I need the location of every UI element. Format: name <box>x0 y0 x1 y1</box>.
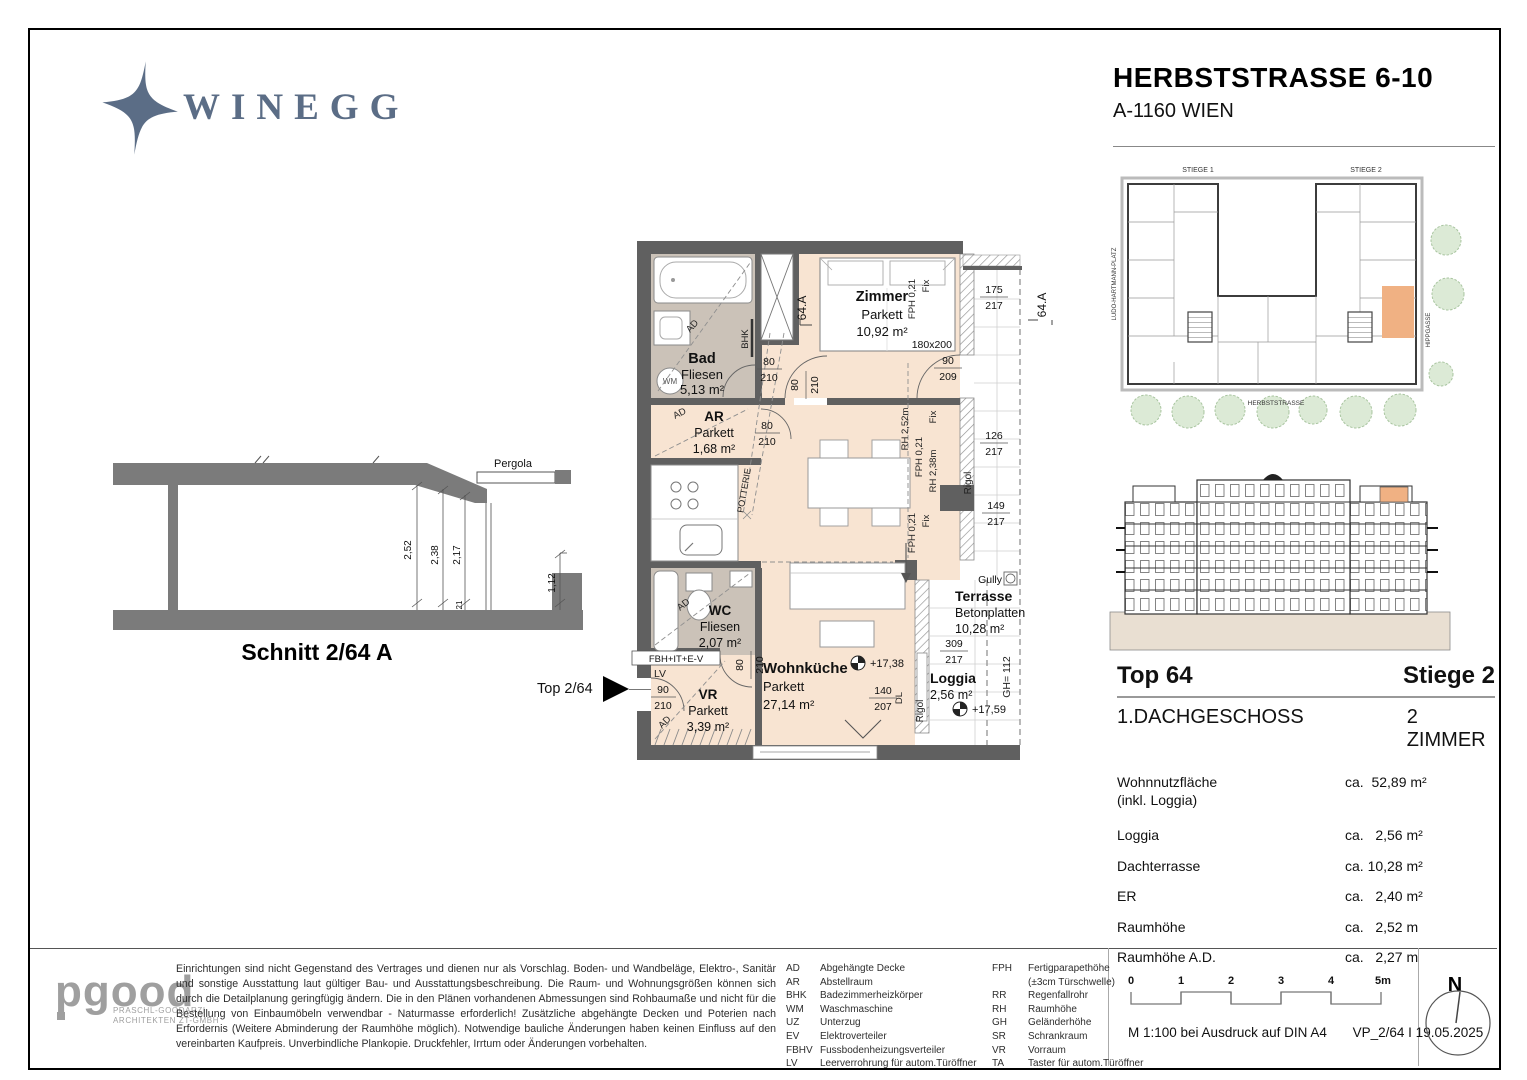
svg-text:BHK: BHK <box>740 329 751 349</box>
legend-column-2: FPH Fertigparapethöhe (±3cm Türschwelle)… <box>992 962 1143 1071</box>
legend-abbr: BHK <box>786 989 820 1003</box>
svg-text:1,68 m²: 1,68 m² <box>693 442 735 456</box>
svg-text:126: 126 <box>985 430 1003 442</box>
legend-desc: Leerverrohrung für autom.Türöffner <box>820 1057 977 1071</box>
legend-desc: Abgehängte Decke <box>820 962 905 976</box>
pergola-anchor <box>555 470 571 484</box>
svg-text:Fix: Fix <box>921 514 932 527</box>
brand-wordmark: WINEGG <box>183 86 409 129</box>
entry-label: Top 2/64 <box>537 681 593 697</box>
svg-text:VR: VR <box>699 687 718 702</box>
floor-plan: WM <box>630 233 1060 773</box>
svg-text:180x200: 180x200 <box>912 339 952 351</box>
section-structure <box>113 463 583 630</box>
svg-text:10,92 m²: 10,92 m² <box>856 324 908 339</box>
svg-text:WC: WC <box>709 603 732 618</box>
svg-text:80: 80 <box>761 420 773 432</box>
ground <box>1110 612 1450 650</box>
svg-text:27,14 m²: 27,14 m² <box>763 697 815 712</box>
svg-text:80: 80 <box>734 659 746 671</box>
svg-text:Wohnküche: Wohnküche <box>763 660 848 677</box>
detail-row: ER ca. 2,40 m² <box>1117 888 1495 906</box>
title-divider <box>1113 146 1495 147</box>
scale-tick-2: 2 <box>1228 975 1234 987</box>
street-bottom-label: HERBSTSTRASSE <box>1248 400 1305 407</box>
unit-stiege: Stiege 2 <box>1403 662 1495 690</box>
footer-divider <box>30 948 1497 949</box>
svg-text:207: 207 <box>874 701 892 713</box>
svg-text:140: 140 <box>874 685 892 697</box>
entry-arrow-icon <box>603 676 629 702</box>
details-divider <box>1117 696 1495 698</box>
section-caption: Schnitt 2/64 A <box>241 639 392 665</box>
detail-label: ER <box>1117 888 1345 906</box>
detail-row: Loggia ca. 2,56 m² <box>1117 827 1495 845</box>
dim-21: 21 <box>455 600 464 609</box>
svg-text:210: 210 <box>754 656 766 674</box>
scale-bar: 0 1 2 3 4 5m <box>1125 972 1410 1017</box>
detail-label: Dachterrasse <box>1117 858 1345 876</box>
legend-abbr: GH <box>992 1016 1028 1030</box>
legend-desc: Badezimmerheizkörper <box>820 989 923 1003</box>
section-drawing: Pergola 2,52 2,38 2,17 1,12 21 Schnitt 2… <box>105 445 605 675</box>
dim-112: 1,12 <box>547 573 558 593</box>
scale-tick-3: 3 <box>1278 975 1284 987</box>
highlighted-unit <box>1382 286 1414 338</box>
detail-label: Loggia <box>1117 827 1345 845</box>
svg-text:Rigol: Rigol <box>963 472 974 495</box>
svg-text:Gully: Gully <box>978 574 1003 586</box>
legend-desc: Unterzug <box>820 1016 861 1030</box>
legend-desc: Elektroverteiler <box>820 1030 887 1044</box>
svg-text:90: 90 <box>657 684 669 696</box>
svg-text:Fix: Fix <box>921 279 932 292</box>
svg-text:2,07 m²: 2,07 m² <box>699 636 741 650</box>
site-plan: STIEGE 1 STIEGE 2 LUDO-HARTMANN-PLATZ HI… <box>1108 152 1503 440</box>
legend-column-1: ADAbgehängte Decke ARAbstellraum BHKBade… <box>786 962 977 1071</box>
legend-abbr: FBHV <box>786 1044 820 1058</box>
svg-text:217: 217 <box>985 446 1003 458</box>
svg-text:149: 149 <box>987 500 1005 512</box>
svg-text:217: 217 <box>945 654 963 666</box>
svg-text:309: 309 <box>945 638 963 650</box>
highlighted-unit-elevation <box>1380 487 1408 502</box>
dim-217: 2,17 <box>452 545 463 565</box>
svg-text:Rigol: Rigol <box>915 700 926 723</box>
unit-details: Top 64 Stiege 2 1.DACHGESCHOSS 2 ZIMMER … <box>1117 662 1495 980</box>
svg-text:Terrasse: Terrasse <box>955 588 1013 604</box>
detail-value: ca. 2,40 m² <box>1345 888 1423 906</box>
svg-text:RH 2,52m: RH 2,52m <box>900 408 911 451</box>
legend-abbr: AR <box>786 976 820 990</box>
svg-text:LV: LV <box>654 668 666 680</box>
dim-238: 2,38 <box>430 545 441 565</box>
legend-abbr: AD <box>786 962 820 976</box>
detail-row: Raumhöhe ca. 2,52 m <box>1117 919 1495 937</box>
svg-text:+17,38: +17,38 <box>870 658 904 670</box>
street-right-label: HIPPGASSE <box>1426 313 1432 348</box>
svg-text:2,56 m²: 2,56 m² <box>930 688 972 702</box>
page-title: HERBSTSTRASSE 6-10 <box>1113 62 1433 94</box>
gully: Gully <box>978 572 1017 586</box>
detail-value: ca. 52,89 m² <box>1345 774 1427 809</box>
svg-text:210: 210 <box>760 372 778 384</box>
legend-abbr: FPH <box>992 962 1028 989</box>
left-wing <box>1125 502 1197 614</box>
svg-text:Fliesen: Fliesen <box>700 620 740 634</box>
wardrobe <box>761 254 793 340</box>
detail-label: Wohnnutzfläche <box>1117 774 1217 790</box>
detail-label-2: (inkl. Loggia) <box>1117 792 1197 808</box>
glass-front <box>486 503 491 610</box>
scale-tick-1: 1 <box>1178 975 1184 987</box>
svg-text:5,13 m²: 5,13 m² <box>680 382 725 397</box>
svg-text:FPH 0,21: FPH 0,21 <box>907 279 918 319</box>
legend-abbr: TA <box>992 1057 1028 1071</box>
roof-dome <box>1263 474 1283 480</box>
winegg-logo-star <box>94 60 186 156</box>
detail-row: Raumhöhe A.D. ca. 2,27 m <box>1117 949 1495 967</box>
unit-floor: 1.DACHGESCHOSS <box>1117 706 1304 752</box>
legend-desc: Waschmaschine <box>820 1003 893 1017</box>
svg-text:GH= 112: GH= 112 <box>1001 656 1013 698</box>
north-needle <box>1456 992 1460 1023</box>
legend-desc: Schrankraum <box>1028 1030 1087 1044</box>
legend-desc: Geländerhöhe <box>1028 1016 1091 1030</box>
legend-abbr: LV <box>786 1057 820 1071</box>
svg-text:80: 80 <box>763 356 775 368</box>
svg-text:Betonplatten: Betonplatten <box>955 606 1025 620</box>
svg-text:FPH 0,21: FPH 0,21 <box>907 513 918 553</box>
legend-desc: Fertigparapethöhe <box>1028 963 1110 974</box>
legend-abbr: EV <box>786 1030 820 1044</box>
legend-desc: Taster für autom.Türöffner <box>1028 1057 1143 1071</box>
detail-label: Raumhöhe <box>1117 919 1345 937</box>
legend-desc: Fussbodenheizungsverteiler <box>820 1044 945 1058</box>
kitchen-counter <box>651 465 738 561</box>
legend-desc: Raumhöhe <box>1028 1003 1077 1017</box>
legend-abbr: RH <box>992 1003 1028 1017</box>
detail-value: ca. 2,27 m <box>1345 949 1418 967</box>
roof-ticks <box>255 456 379 463</box>
stiege2-label: STIEGE 2 <box>1350 167 1382 174</box>
legend-desc: Abstellraum <box>820 976 873 990</box>
detail-row: Dachterrasse ca. 10,28 m² <box>1117 858 1495 876</box>
svg-text:Parkett: Parkett <box>763 679 805 694</box>
center-block <box>1197 480 1350 614</box>
svg-text:Parkett: Parkett <box>688 704 728 718</box>
architect-logo-dot <box>57 1012 65 1020</box>
svg-text:RH 2,38m: RH 2,38m <box>928 450 939 493</box>
legend-abbr: WM <box>786 1003 820 1017</box>
unit-rooms: 2 ZIMMER <box>1407 706 1495 752</box>
svg-text:64.A: 64.A <box>795 296 809 321</box>
svg-text:10,28 m²: 10,28 m² <box>955 622 1004 636</box>
right-wing <box>1350 502 1427 614</box>
level-marker-loggia: +17,59 <box>953 702 1006 716</box>
svg-text:210: 210 <box>758 436 776 448</box>
svg-text:AR: AR <box>704 409 724 424</box>
bottom-window <box>753 746 877 759</box>
svg-text:Zimmer: Zimmer <box>856 289 909 305</box>
disclaimer-text: Einrichtungen sind nicht Gegenstand des … <box>176 962 776 1052</box>
svg-text:210: 210 <box>809 376 821 394</box>
svg-text:217: 217 <box>985 300 1003 312</box>
unit-number: Top 64 <box>1117 662 1193 690</box>
detail-label: Raumhöhe A.D. <box>1117 949 1345 967</box>
svg-text:Bad: Bad <box>688 351 715 367</box>
svg-text:175: 175 <box>985 284 1003 296</box>
detail-row: Wohnnutzfläche (inkl. Loggia) ca. 52,89 … <box>1117 774 1495 809</box>
level-marker-wohnkueche: +17,38 <box>851 656 904 670</box>
svg-text:FBH+IT+E-V: FBH+IT+E-V <box>649 654 704 665</box>
svg-text:80: 80 <box>789 379 801 391</box>
north-arrow: N <box>1422 975 1494 1060</box>
svg-text:Fliesen: Fliesen <box>681 367 723 382</box>
svg-text:209: 209 <box>939 371 957 383</box>
legend-desc: Vorraum <box>1028 1044 1066 1058</box>
legend-abbr: UZ <box>786 1016 820 1030</box>
svg-text:+17,59: +17,59 <box>972 704 1006 716</box>
footer-vline-2 <box>1418 948 1419 1066</box>
legend-abbr: SR <box>992 1030 1028 1044</box>
north-circle <box>1426 991 1490 1055</box>
scale-tick-4: 4 <box>1328 975 1335 987</box>
svg-text:217: 217 <box>987 516 1005 528</box>
detail-value: ca. 2,56 m² <box>1345 827 1423 845</box>
scale-text: M 1:100 bei Ausdruck auf DIN A4 <box>1128 1025 1327 1040</box>
scale-tick-0: 0 <box>1128 975 1134 987</box>
pergola-beam <box>477 472 555 483</box>
svg-text:210: 210 <box>654 700 672 712</box>
legend-desc: Regenfallrohr <box>1028 989 1088 1003</box>
legend-abbr: VR <box>992 1044 1028 1058</box>
svg-text:FPH 0,21: FPH 0,21 <box>914 437 925 477</box>
stair-core-1 <box>1188 312 1212 342</box>
svg-text:64.A: 64.A <box>1035 293 1049 318</box>
svg-text:90: 90 <box>942 355 954 367</box>
page-subtitle: A-1160 WIEN <box>1113 100 1234 123</box>
svg-text:Parkett: Parkett <box>694 426 734 440</box>
svg-text:Fix: Fix <box>928 410 939 423</box>
street-left-label: LUDO-HARTMANN-PLATZ <box>1112 247 1118 320</box>
fbh-label: FBH+IT+E-V <box>632 651 720 665</box>
plan-sheet: WINEGG HERBSTSTRASSE 6-10 A-1160 WIEN S <box>0 0 1527 1080</box>
building-elevation <box>1108 462 1488 662</box>
detail-value: ca. 2,52 m <box>1345 919 1418 937</box>
detail-value: ca. 10,28 m² <box>1345 858 1423 876</box>
svg-text:Parkett: Parkett <box>861 307 903 322</box>
stair-core-2 <box>1348 312 1372 342</box>
dim-252: 2,52 <box>403 540 414 560</box>
svg-text:3,39 m²: 3,39 m² <box>687 720 729 734</box>
legend-desc-2: (±3cm Türschwelle) <box>1028 977 1115 988</box>
scale-tick-5: 5m <box>1375 975 1391 987</box>
stiege1-label: STIEGE 1 <box>1182 167 1214 174</box>
svg-text:Loggia: Loggia <box>930 670 976 686</box>
pergola-label: Pergola <box>494 458 533 470</box>
legend-abbr: RR <box>992 989 1028 1003</box>
scale-segments <box>1131 992 1381 1004</box>
